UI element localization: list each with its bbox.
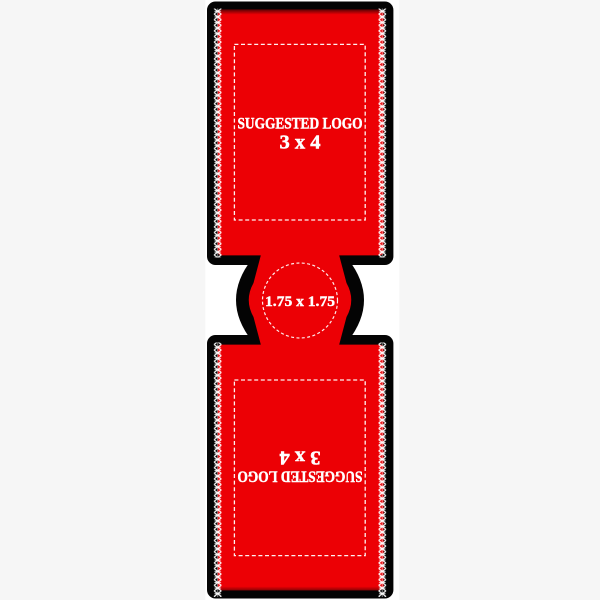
svg-text:3 x 4: 3 x 4 xyxy=(280,132,321,154)
svg-text:3 x 4: 3 x 4 xyxy=(280,446,321,468)
svg-text:SUGGESTED LOGO: SUGGESTED LOGO xyxy=(238,115,363,132)
svg-text:SUGGESTED LOGO: SUGGESTED LOGO xyxy=(238,468,363,485)
svg-text:1.75 x 1.75: 1.75 x 1.75 xyxy=(265,293,335,310)
